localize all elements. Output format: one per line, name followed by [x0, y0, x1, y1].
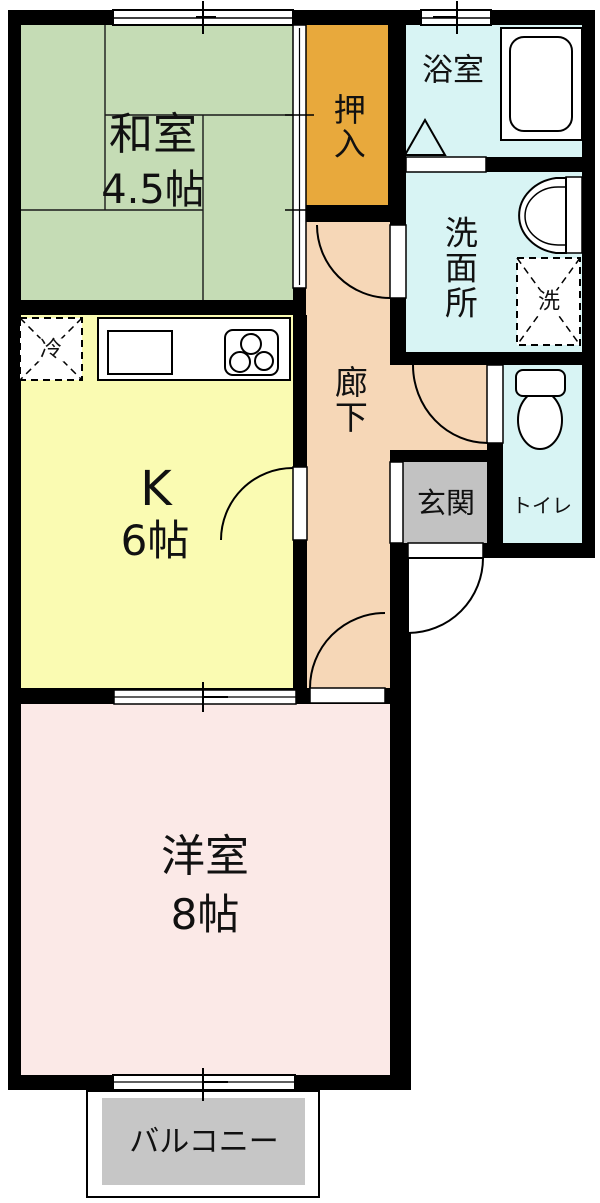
refrigerator-label: 冷 [38, 338, 64, 361]
wall-genkan-top [390, 450, 487, 462]
wall-bath-washroom [406, 157, 595, 172]
washitsu-label: 和室 [109, 112, 197, 158]
balcony-label: バルコニー [129, 1126, 278, 1158]
wall-right-block-bottom [390, 543, 595, 558]
washer-label: 洗 [536, 290, 562, 313]
wall-kitchen-right [293, 315, 307, 688]
wall-left [8, 25, 21, 1090]
oshiire-label: 押入 [330, 93, 364, 161]
wall-toilet-left [487, 365, 503, 543]
senmenjo-label: 洗面所 [441, 216, 476, 321]
wall-kitchen-bottom [8, 688, 411, 704]
room-rouka-extension [390, 365, 487, 450]
wall-top [8, 10, 595, 25]
room-washitsu [21, 25, 293, 300]
room-senmenjo [406, 172, 582, 352]
wall-youshitsu-bottom [8, 1075, 411, 1090]
rouka-label: 廊下 [331, 365, 366, 435]
washitsu-size-label: 4.5帖 [101, 169, 205, 211]
wall-washroom-bottom [390, 352, 595, 365]
wall-washitsu-right [293, 25, 306, 300]
wall-corridor-washroom [390, 222, 406, 365]
wall-right-upper [582, 25, 595, 558]
wall-washitsu-bottom [21, 300, 306, 315]
wall-oshiire-right [388, 25, 406, 205]
kitchen-label: K [140, 464, 171, 514]
yokushitsu-label: 浴室 [422, 55, 484, 88]
youshitsu-label: 洋室 [161, 834, 249, 880]
toilet-label: トイレ [512, 496, 572, 517]
genkan-step [390, 462, 403, 543]
kitchen-size-label: 6帖 [121, 519, 190, 563]
room-rouka-main [306, 222, 390, 688]
floor-plan: 和室 4.5帖 押入 浴室 洗面所 洗 廊下 冷 K 6帖 玄関 トイレ 洋室 … [0, 0, 600, 1203]
wall-oshiire-bottom [306, 205, 406, 222]
youshitsu-size-label: 8帖 [171, 893, 240, 937]
genkan-label: 玄関 [417, 488, 475, 518]
wall-right-lower [390, 558, 411, 1090]
room-yokushitsu [406, 25, 582, 157]
